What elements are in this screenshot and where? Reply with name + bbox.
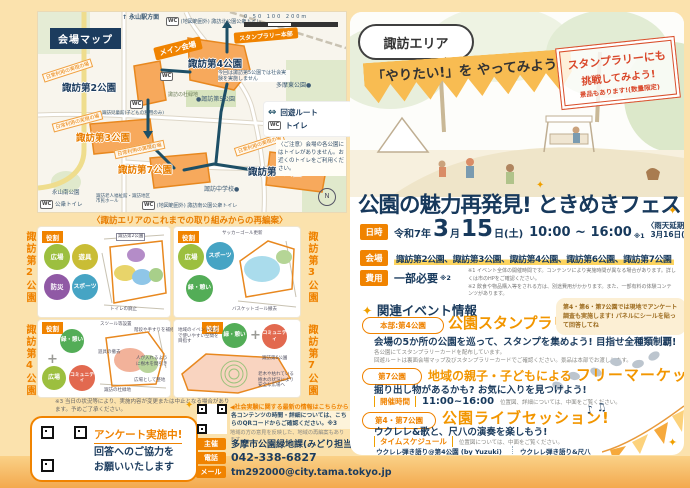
sketch-note: スツール等設置	[100, 322, 132, 328]
event1-small1: 各公園にてスタンプラリーカードを配布しています。	[374, 348, 505, 356]
day-number: 15	[461, 220, 493, 240]
event1-subtitle: 会場の5か所の公園を巡って、スタンプを集めよう! 目指せ全種類制覇!	[374, 334, 676, 348]
survey-notice-bubble: 第4・第6・第7公園では現地でアンケート調査も実施します! パネルにシールを貼っ…	[556, 298, 684, 335]
note1-text: ※1 イベント全体の開催時間です。コンテンツにより実施時間が異なる場合があります…	[468, 268, 676, 284]
sketch-note: 諏訪第6公園	[262, 356, 287, 362]
sketch-note: 広場として整地	[134, 378, 165, 384]
wc-icon: WC	[130, 100, 143, 109]
sketch-note: 階段や手すりを補修	[134, 328, 175, 334]
scale-200m: 200m	[286, 14, 308, 20]
compass-icon: N	[318, 188, 336, 206]
up-arrow-icon: ↑	[122, 14, 127, 21]
fee-value: 一部必要	[394, 270, 438, 286]
park7-panel-label: 諏訪第7公園	[304, 324, 319, 397]
month-number: 3	[433, 220, 449, 240]
sketch-note: 老木や枯れている樹木の状況により安全な広場へ	[258, 372, 298, 389]
south-toilet-label: (地図範囲外) 諏訪南公園公衆トイレ	[157, 203, 238, 209]
scale-100: 100	[267, 14, 283, 20]
event2-time-row: 開催時間 11:00~16:00 位置図、詳細については、中面をご覧ください。	[374, 396, 621, 407]
note2-text: ※2 飲食や物品購入等をされる方は、別途費用がかかります。また、一部有料の体験コ…	[468, 284, 676, 300]
park7-label: 諏訪第7公園	[118, 162, 172, 176]
map-caution-note: 〈ご注意〉会場の各公園にはトイレがありません。お近くのトイレをご利用ください。	[276, 140, 346, 176]
role-circle: 広場	[44, 244, 70, 270]
park5-label: ●諏訪第5公園	[196, 96, 235, 103]
email-value: tm292000@city.tama.tokyo.jp	[231, 467, 392, 478]
park3-panel-label: 諏訪第3公園	[304, 231, 319, 304]
survey-qr-code	[41, 426, 87, 472]
reorg-caption: 〈諏訪エリアのこれまでの取り組みからの再編案〉	[92, 214, 288, 226]
wc-icon: WC	[40, 200, 53, 209]
role-badge: 役割	[42, 231, 63, 243]
event2-time-value: 11:00~16:00	[422, 396, 494, 407]
era-text: 令和7年	[394, 225, 431, 240]
event3-small: 位置図については、中面をご覧ください。	[459, 438, 563, 446]
event-title: 公園の魅力再発見! ときめきフェス	[358, 188, 680, 219]
event2-subtitle: 掘り出し物があるかも? お気に入りを見つけよう!	[374, 382, 587, 396]
role-circle: スポーツ	[72, 274, 98, 300]
sparkle-icon: ✦	[668, 204, 677, 217]
role-circle: 防災	[44, 274, 70, 300]
venue-row: 会場 諏訪第2公園、諏訪第3公園、諏訪第4公園、諏訪第6公園、諏訪第7公園	[360, 250, 674, 266]
role-circle: コミュニティ	[69, 365, 95, 391]
stamp-rally-stamp: スタンプラリーにも 挑戦してみよう! 景品もあります!(数量限定)	[555, 36, 681, 110]
plus-sign: +	[250, 328, 261, 343]
email-row: メール tm292000@city.tama.tokyo.jp	[196, 466, 392, 478]
wc-icon: WC	[142, 201, 155, 210]
date-row: 日時 令和7年 3 月 15 日(土) 10:00 ~ 16:00 ※1 〈雨天…	[360, 220, 684, 240]
reorg-panel-park2: 役割 広場 遊具 防災 スポーツ 諏訪第2公園 トイレの廃止	[38, 227, 170, 317]
latest-info-line1: 各コンテンツの時間・詳細については、こちらのQRコードからご確認ください。※3	[230, 411, 350, 429]
reorg-panel-park4: 役割 緑・憩い + 広場 コミュニティ スツール等設置 階段や手すりを補修 遊具…	[38, 320, 170, 397]
reorg-panel-park7: 役割 緑・憩い + コミュニティ 地域のイベントなどで使いやすい空間を目指す 諏…	[174, 320, 300, 397]
map-title-badge: 会場マップ	[50, 28, 121, 49]
event2-title-part2: フリーマーケット	[576, 366, 684, 384]
venue-value: 諏訪第2公園、諏訪第3公園、諏訪第4公園、諏訪第6公園、諏訪第7公園	[394, 252, 674, 265]
role-circle: 緑・憩い	[186, 275, 213, 302]
sketch-note: 諏訪の杜緑地	[104, 388, 131, 394]
sparkle-icon: ✦	[362, 303, 372, 318]
jidokan-label: 諏訪児童館(子どもの利用のみ)	[102, 111, 164, 116]
time-range: 10:00 ~ 16:00	[529, 225, 632, 240]
survey-box: アンケート実施中! 回答へのご協力をお願いいたします	[30, 416, 198, 482]
day-unit: 日(土)	[494, 225, 523, 240]
venue-label: 会場	[360, 250, 388, 266]
role-circle: 広場	[42, 366, 66, 390]
sketch-note: 人が入れるように樹木を間引き	[136, 356, 168, 367]
sketch-note: トイレの廃止	[110, 307, 137, 313]
public-toilet-label: 公衆トイレ	[55, 202, 83, 208]
suwa-mori-label: 諏訪の杜緑地	[168, 92, 198, 98]
organizer-row: 主催 多摩市公園緑地課(みどり担当2)	[196, 437, 363, 450]
park4-label: 諏訪第4公園	[188, 56, 242, 70]
legend-toilet-label: トイレ	[285, 120, 308, 131]
flyer-page: 会場マップ ↑ 永山駅方面 WC (地図範囲外) 諏訪北公園公衆トイレ 0 50…	[0, 0, 690, 488]
date-label: 日時	[360, 224, 388, 240]
scale-50: 50	[253, 14, 263, 20]
sparkle-icon: ✦	[536, 180, 544, 191]
sparkle-icon: ✦	[185, 400, 193, 411]
organizer-value: 多摩市公園緑地課(みどり担当2)	[231, 437, 363, 450]
role-circle: コミュニティ	[262, 324, 287, 349]
role-circle: 広場	[178, 244, 204, 270]
event2-title-part1: 地域の親子・子どもによる	[428, 369, 572, 383]
role-circle: スポーツ	[206, 242, 234, 270]
event-card: 諏訪エリア 「やりたい!」を やってみよう! スタンプラリーにも 挑戦してみよう…	[350, 12, 684, 455]
park3-label: 諏訪第3公園	[76, 130, 130, 144]
sketch-note: 遊具の撤去	[98, 350, 121, 356]
role-circle: 遊具	[72, 244, 98, 270]
sketch-note: 諏訪第2公園	[116, 233, 145, 241]
event2-time-label: 開催時間	[374, 396, 416, 407]
note2-ref: ※2	[440, 274, 451, 282]
rain-date-value: 3月16日(日)	[650, 230, 684, 239]
organizer-label: 主催	[196, 438, 226, 450]
survey-title: アンケート実施中!	[94, 427, 182, 444]
phone-value: 042-338-6827	[231, 451, 317, 464]
phone-row: 電話 042-338-6827	[196, 451, 317, 464]
sketch-note: バスケットゴール撤去	[232, 307, 277, 313]
tama-east-label: 多摩東公園●	[276, 82, 311, 89]
survey-line1: 回答へのご協力を	[94, 447, 174, 458]
park2-label: 諏訪第2公園	[62, 80, 116, 94]
note1-ref: ※1	[634, 232, 645, 240]
venue-map: 会場マップ ↑ 永山駅方面 WC (地図範囲外) 諏訪北公園公衆トイレ 0 50…	[38, 12, 346, 212]
park4-panel-label: 諏訪第4公園	[22, 324, 37, 397]
latest-info-qr-code	[197, 404, 227, 434]
fee-label: 費用	[360, 270, 388, 286]
rain-date-label: 〈雨天延期時〉	[647, 221, 684, 230]
schedule-slot1: ウクレレ弾き語り@第4公園 (by Yuzuki) 12:45~ / 14:45…	[372, 446, 506, 455]
month-unit: 月	[450, 225, 460, 240]
role-badge: 役割	[42, 322, 63, 334]
event1-badge: 本部:第4公園	[362, 317, 444, 334]
junior-high-label: 諏訪中学校●	[204, 186, 239, 193]
legend-route-label: 回遊ルート	[280, 107, 318, 118]
fee-row: 費用 一部必要 ※2	[360, 270, 453, 286]
latest-info-headline: ◀社会実験に関する最新の情報はこちらから	[230, 402, 350, 411]
sketch-note: 地域のイベントなどで使いやすい空間を目指す	[178, 328, 220, 345]
no-experiment-note: 今回は諏訪第5公園では社会実験を実施しません	[218, 70, 290, 82]
role-circle: 緑・憩い	[222, 323, 247, 348]
wc-icon: WC	[268, 121, 281, 130]
sparkle-icon: ✦	[668, 436, 677, 449]
wc-icon: WC	[160, 72, 173, 81]
station-label: 永山駅方面	[129, 14, 159, 21]
plus-sign: +	[47, 352, 58, 367]
area-speech-bubble: 諏訪エリア	[358, 24, 474, 60]
survey-line2: お願いいたします	[94, 462, 174, 473]
scale-0: 0	[244, 14, 249, 20]
schedule-divider	[512, 446, 513, 455]
reorg-panel-park3: 役割 広場 スポーツ 緑・憩い サッカーゴール更新 バスケットゴール撤去	[174, 227, 300, 317]
sketch-note: サッカーゴール更新	[222, 231, 263, 237]
map-legend: ⇔回遊ルート WCトイレ	[264, 102, 352, 136]
park2-panel-label: 諏訪第2公園	[22, 231, 37, 304]
slot1-name: ウクレレ弾き語り@第4公園 (by Yuzuki)	[372, 446, 506, 455]
wc-icon: WC	[166, 17, 179, 26]
fee-notes: ※1 イベント全体の開催時間です。コンテンツにより実施時間が異なる場合があります…	[468, 268, 676, 299]
route-arrow-icon: ⇔	[268, 107, 276, 118]
role-circle: 緑・憩い	[60, 329, 84, 353]
scale-bar	[244, 22, 338, 27]
role-badge: 役割	[178, 231, 199, 243]
nagayama-minami-label: 永山南公園	[52, 190, 80, 197]
park3-sketch	[236, 237, 298, 309]
email-label: メール	[196, 466, 226, 478]
phone-label: 電話	[196, 452, 226, 464]
park2-sketch	[100, 233, 168, 311]
